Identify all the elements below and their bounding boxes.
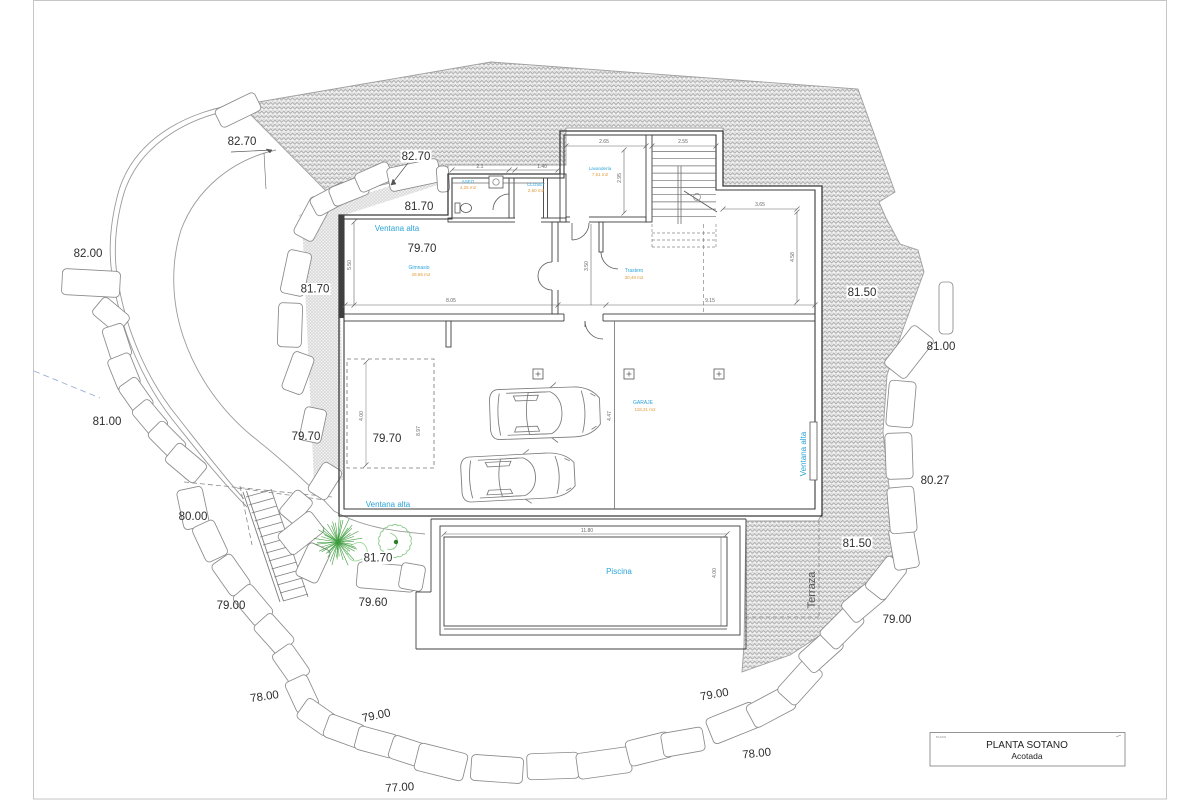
svg-text:2.65: 2.65 [599, 139, 609, 145]
svg-text:3.50: 3.50 [584, 261, 590, 271]
svg-text:81.70: 81.70 [364, 553, 393, 565]
svg-text:82.70: 82.70 [402, 151, 431, 163]
svg-text:Gimnasio: Gimnasio [408, 265, 429, 271]
svg-text:CLOSET: CLOSET [527, 182, 545, 187]
svg-text:79.00: 79.00 [217, 600, 246, 612]
svg-text:80.27: 80.27 [921, 475, 950, 487]
svg-text:2.55: 2.55 [678, 139, 688, 145]
svg-text:GARAJE: GARAJE [633, 400, 654, 406]
svg-text:4.47: 4.47 [607, 411, 613, 421]
svg-text:81.00: 81.00 [93, 416, 122, 428]
svg-text:28,65 m2: 28,65 m2 [412, 272, 431, 277]
svg-text:79.00: 79.00 [883, 614, 912, 626]
svg-text:79.70: 79.70 [373, 433, 402, 445]
svg-text:8.97: 8.97 [416, 426, 422, 436]
svg-text:ASEO: ASEO [462, 179, 475, 184]
svg-text:79.60: 79.60 [359, 597, 388, 609]
svg-text:4.58: 4.58 [790, 252, 796, 262]
svg-text:Terraza: Terraza [806, 571, 818, 609]
svg-text:4,25 m2: 4,25 m2 [460, 185, 477, 190]
svg-text:Ventana alta: Ventana alta [375, 224, 420, 233]
svg-text:79.70: 79.70 [408, 243, 437, 255]
svg-text:81.50: 81.50 [848, 287, 877, 299]
svg-text:PLANTA SOTANO: PLANTA SOTANO [986, 740, 1068, 751]
svg-text:Ventana alta: Ventana alta [366, 500, 411, 509]
svg-text:118,31 m2: 118,31 m2 [635, 407, 656, 412]
svg-text:Lavandería: Lavandería [589, 166, 612, 171]
svg-text:80.00: 80.00 [179, 511, 208, 523]
svg-text:PLANO: PLANO [936, 735, 947, 739]
svg-text:Ventana alta: Ventana alta [799, 431, 808, 476]
svg-text:Trastero: Trastero [625, 268, 644, 274]
svg-text:11.80: 11.80 [581, 528, 593, 534]
svg-text:Acotada: Acotada [1011, 751, 1042, 761]
svg-text:5.50: 5.50 [347, 260, 353, 270]
svg-text:30,49 m2: 30,49 m2 [625, 275, 644, 280]
svg-text:82.00: 82.00 [74, 248, 103, 260]
svg-text:3.65: 3.65 [755, 202, 765, 208]
svg-text:79.70: 79.70 [292, 431, 321, 443]
svg-text:9.15: 9.15 [705, 298, 715, 304]
svg-text:4.00: 4.00 [712, 568, 718, 578]
svg-text:82.70: 82.70 [228, 136, 257, 148]
svg-text:81.50: 81.50 [843, 538, 872, 550]
svg-text:81.00: 81.00 [927, 341, 956, 353]
svg-text:Piscina: Piscina [606, 567, 632, 576]
svg-text:4.00: 4.00 [359, 411, 365, 421]
svg-text:2,60 m2: 2,60 m2 [528, 188, 545, 193]
svg-text:81.70: 81.70 [405, 201, 434, 213]
svg-text:2.95: 2.95 [617, 173, 623, 183]
svg-text:7,61 m2: 7,61 m2 [592, 172, 609, 177]
svg-text:2.1: 2.1 [477, 164, 484, 170]
svg-text:8.05: 8.05 [446, 298, 456, 304]
svg-text:81.70: 81.70 [301, 284, 330, 296]
svg-text:1.40: 1.40 [537, 164, 547, 170]
svg-text:77.00: 77.00 [385, 781, 415, 795]
